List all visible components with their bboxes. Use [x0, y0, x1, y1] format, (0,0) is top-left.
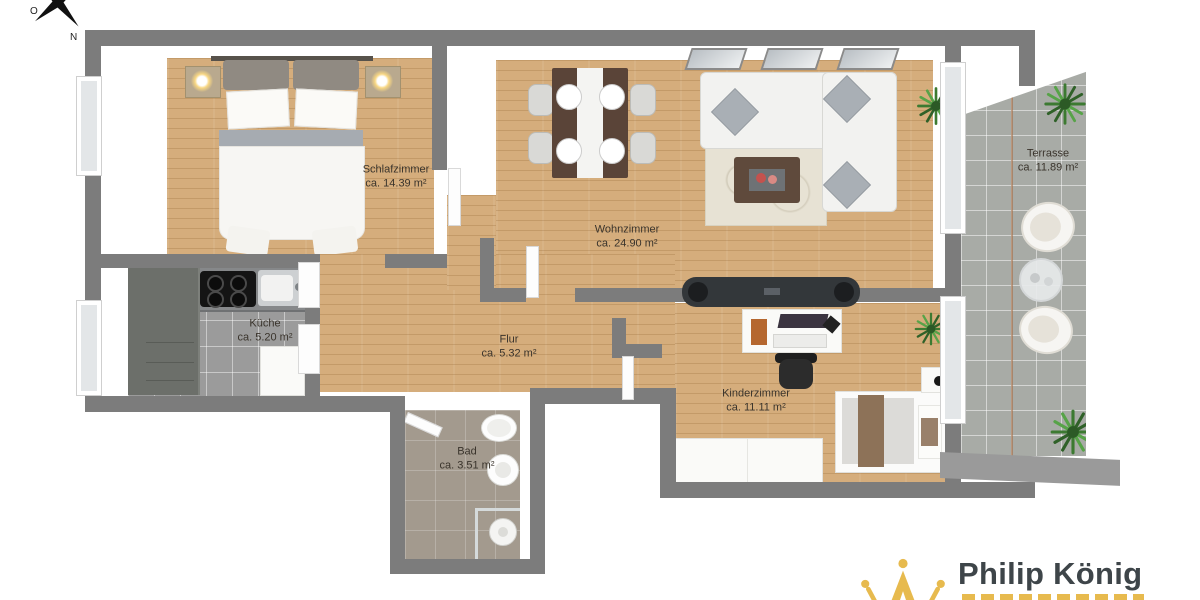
room-bad	[405, 410, 530, 559]
toilet	[481, 414, 517, 442]
table-runner	[577, 68, 603, 178]
terrace-table	[1019, 258, 1063, 302]
coffee-table	[734, 157, 800, 203]
dining-chair	[630, 84, 656, 116]
kitchen-door	[298, 324, 320, 374]
drawer-line	[146, 342, 194, 343]
bedside-lamp	[371, 70, 393, 92]
kitchen-door	[298, 262, 320, 308]
shower-glass	[475, 508, 520, 511]
sink-basin	[261, 275, 293, 301]
kinder-terrace-window	[940, 296, 966, 424]
headboard-cushion	[223, 60, 289, 90]
plant	[1041, 80, 1089, 128]
office-chair	[779, 359, 813, 389]
wall-living-kinder-a	[480, 288, 526, 302]
plate	[556, 138, 582, 164]
shower-glass	[475, 508, 478, 559]
room-label-flur: Flur ca. 5.32 m²	[481, 333, 536, 361]
room-name: Terrasse	[1018, 147, 1078, 161]
wardrobe	[675, 438, 823, 482]
room-name: Bad	[439, 445, 494, 459]
wall-kitchen-bottom	[85, 396, 405, 412]
wall-bedroom-bottom-left	[85, 254, 315, 268]
bedroom-window	[76, 76, 102, 176]
compass-north-label: N	[70, 32, 77, 43]
room-label-wohnzimmer: Wohnzimmer ca. 24.90 m²	[595, 223, 660, 251]
kid-bed	[835, 391, 947, 473]
room-terrasse	[961, 60, 1086, 456]
plate	[599, 84, 625, 110]
burner	[207, 291, 224, 308]
wall-bedroom-bottom-right	[385, 254, 447, 268]
room-area: ca. 11.89 m²	[1018, 161, 1078, 175]
dining-chair	[630, 132, 656, 164]
wall-topright-stub	[1019, 30, 1035, 86]
tv-sideboard	[682, 277, 860, 307]
bedroom-door	[448, 168, 461, 226]
pillow	[226, 88, 290, 129]
pillow	[294, 88, 358, 129]
blanket-stripe	[858, 395, 884, 467]
room-label-kueche: Küche ca. 5.20 m²	[237, 317, 292, 345]
wall-bedroom-right	[432, 30, 447, 170]
duvet-flap	[312, 225, 359, 256]
speaker	[688, 282, 708, 302]
kitchen-window	[76, 300, 102, 396]
wall-bath-left	[390, 396, 405, 574]
drawer-line	[146, 380, 194, 381]
toilet-seat	[487, 419, 511, 437]
sink-bowl	[495, 462, 511, 478]
floor-plan: Schlafzimmer ca. 14.39 m² Wohnzimmer ca.…	[0, 0, 1200, 600]
compass-east-label: O	[30, 6, 38, 17]
room-area: ca. 11.11 m²	[722, 401, 790, 415]
dining-chair	[528, 132, 554, 164]
skylight	[760, 48, 823, 70]
cooktop	[200, 271, 256, 307]
double-bed	[219, 60, 363, 238]
room-area: ca. 5.20 m²	[237, 331, 292, 345]
kinderzimmer-door	[622, 356, 634, 400]
terrace-ledge-wall	[940, 452, 1120, 486]
flowers	[768, 175, 777, 184]
room-name: Schlafzimmer	[363, 163, 430, 177]
livingroom-door	[526, 246, 539, 298]
bath-door	[404, 412, 443, 438]
room-label-schlafzimmer: Schlafzimmer ca. 14.39 m²	[363, 163, 430, 191]
shower-head	[489, 518, 517, 546]
lounge-chair	[1015, 302, 1077, 359]
coffee-table-tray	[749, 169, 785, 191]
terrace-door-window	[940, 62, 966, 234]
dining-chair	[528, 84, 554, 116]
tv-detail	[764, 288, 780, 295]
wall-kinder-bottom	[660, 482, 1035, 498]
wall-top	[85, 30, 1035, 46]
keyboard	[773, 334, 827, 348]
terrace-rail-line	[1011, 60, 1013, 456]
room-area: ca. 3.51 m²	[439, 459, 494, 473]
logo-tagline-partial	[962, 594, 1144, 600]
burner	[207, 275, 224, 292]
plate	[556, 84, 582, 110]
room-label-kinderzimmer: Kinderzimmer ca. 11.11 m²	[722, 387, 790, 415]
skylight	[836, 48, 899, 70]
headboard-cushion	[293, 60, 359, 90]
wardrobe-seam	[747, 439, 748, 483]
burner	[230, 291, 247, 308]
flowers	[756, 173, 766, 183]
kitchen-cabinets	[128, 268, 200, 395]
plant	[1047, 406, 1099, 458]
brand-name: Philip König	[958, 556, 1142, 592]
shower-head-center	[498, 527, 508, 537]
laptop	[778, 314, 829, 328]
room-area: ca. 5.32 m²	[481, 347, 536, 361]
room-kinderzimmer	[675, 303, 945, 482]
cup	[1044, 277, 1053, 286]
speaker	[834, 282, 854, 302]
room-name: Flur	[481, 333, 536, 347]
bedside-lamp	[191, 70, 213, 92]
blanket-fold	[219, 130, 363, 146]
room-wohnzimmer	[447, 46, 945, 289]
room-area: ca. 14.39 m²	[363, 177, 430, 191]
book	[751, 319, 767, 345]
lounge-chair	[1016, 197, 1079, 257]
room-label-bad: Bad ca. 3.51 m²	[439, 445, 494, 473]
desk	[742, 309, 842, 353]
wall-bath-right	[530, 396, 545, 574]
cup	[1030, 273, 1040, 283]
wall-bath-bottom	[390, 559, 545, 574]
room-schlafzimmer	[101, 46, 447, 254]
crown-logo-icon	[854, 556, 952, 600]
compass-rose: O N	[12, 0, 98, 52]
plate	[599, 138, 625, 164]
room-name: Kinderzimmer	[722, 387, 790, 401]
wall-mid-bottom	[530, 388, 676, 404]
room-label-terrasse: Terrasse ca. 11.89 m²	[1018, 147, 1078, 175]
wall-flur-kinder-h	[612, 344, 662, 358]
room-area: ca. 24.90 m²	[595, 237, 660, 251]
room-name: Wohnzimmer	[595, 223, 660, 237]
burner	[230, 275, 247, 292]
dining-table	[552, 68, 628, 178]
room-name: Küche	[237, 317, 292, 331]
drawer-line	[146, 362, 194, 363]
skylight	[684, 48, 747, 70]
cushion	[921, 418, 938, 446]
